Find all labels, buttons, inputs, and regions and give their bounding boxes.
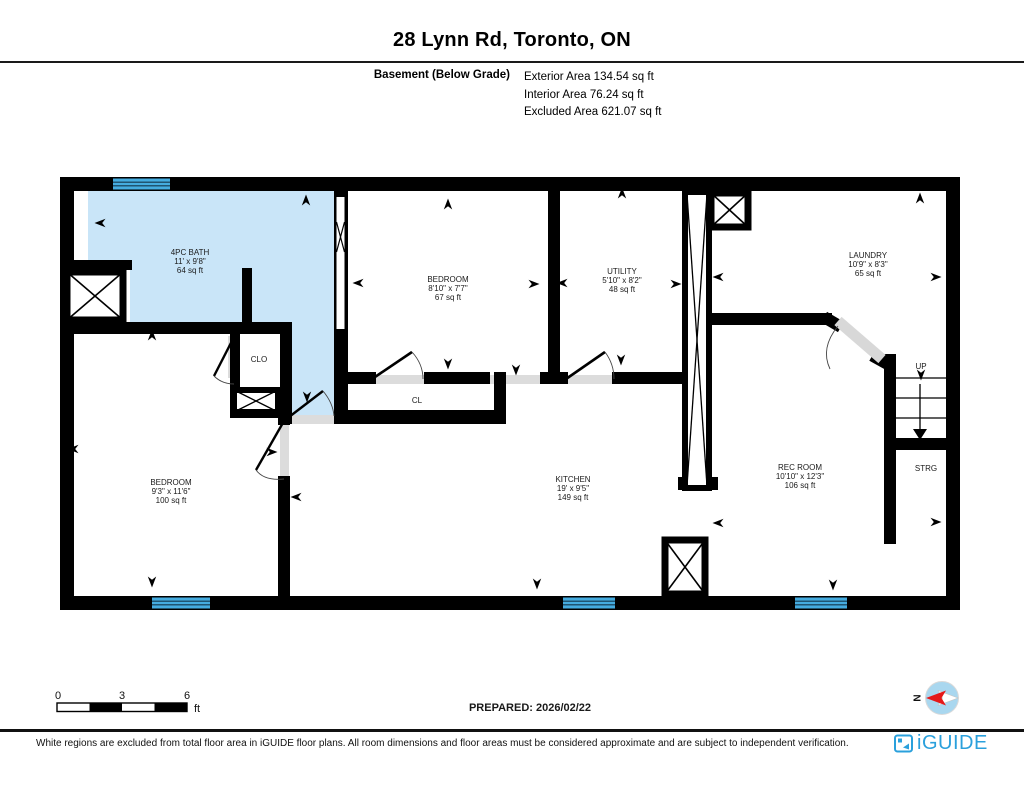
svg-text:LAUNDRY: LAUNDRY <box>849 251 888 260</box>
iguide-logo-icon <box>893 733 914 754</box>
svg-text:9'3" x 11'6": 9'3" x 11'6" <box>152 487 191 496</box>
door-bedroom-top <box>372 352 423 379</box>
svg-text:5'10" x 8'2": 5'10" x 8'2" <box>602 276 642 285</box>
label-bedroom-top: BEDROOM 8'10" x 7'7" 67 sq ft <box>427 275 469 302</box>
iguide-logo-text: iGUIDE <box>917 732 988 755</box>
dimension-arrow <box>291 493 302 501</box>
svg-text:8'10" x 7'7": 8'10" x 7'7" <box>428 284 468 293</box>
svg-text:48 sq ft: 48 sq ft <box>609 285 636 294</box>
label-rec-room: REC ROOM 10'10" x 12'3" 106 sq ft <box>776 463 824 490</box>
svg-text:67 sq ft: 67 sq ft <box>435 293 462 302</box>
dimension-arrow <box>931 273 942 281</box>
shaft-x-kitchen <box>665 540 705 594</box>
svg-text:64 sq ft: 64 sq ft <box>177 266 204 275</box>
shaft-x-clo <box>234 390 278 412</box>
window-kitchen <box>563 598 615 609</box>
floor-plan: 4PC BATH 11' x 9'8" 64 sq ft BEDROOM 8'1… <box>0 0 1024 792</box>
label-bedroom-left: BEDROOM 9'3" x 11'6" 100 sq ft <box>150 478 192 505</box>
svg-text:BEDROOM: BEDROOM <box>150 478 192 487</box>
prepared-date: PREPARED: 2026/02/22 <box>469 702 591 714</box>
dimension-arrow <box>533 579 541 590</box>
window-top <box>113 179 170 190</box>
dimension-arrow <box>713 273 724 281</box>
svg-text:10'10" x 12'3": 10'10" x 12'3" <box>776 472 824 481</box>
label-up: UP <box>915 362 926 371</box>
dimension-arrow <box>444 199 452 210</box>
svg-text:KITCHEN: KITCHEN <box>555 475 590 484</box>
door-utility <box>566 352 614 379</box>
svg-text:100 sq ft: 100 sq ft <box>156 496 187 505</box>
label-strg: STRG <box>915 464 937 473</box>
dimension-arrow <box>829 580 837 591</box>
svg-text:149 sq ft: 149 sq ft <box>558 493 589 502</box>
svg-text:10'9" x 8'3": 10'9" x 8'3" <box>848 260 888 269</box>
compass-north-label: N <box>913 694 924 701</box>
window-recroom <box>795 598 847 609</box>
svg-text:11' x 9'8": 11' x 9'8" <box>174 257 206 266</box>
svg-text:BEDROOM: BEDROOM <box>427 275 469 284</box>
svg-text:4PC BATH: 4PC BATH <box>171 248 210 257</box>
window-bedroom <box>152 598 210 609</box>
label-clo: CLO <box>251 355 267 364</box>
dimension-arrow <box>512 365 520 376</box>
dimension-arrow <box>916 193 924 204</box>
label-cl: CL <box>412 396 423 405</box>
shaft-x-bath <box>67 272 123 320</box>
iguide-logo: iGUIDE <box>893 732 988 755</box>
scale-unit: ft <box>194 703 200 715</box>
dimension-arrow <box>148 577 156 588</box>
dimension-arrow <box>267 448 278 456</box>
chimney-shaft <box>685 192 709 488</box>
disclaimer-text: White regions are excluded from total fl… <box>36 738 849 749</box>
dimension-arrow <box>617 355 625 366</box>
svg-text:106 sq ft: 106 sq ft <box>785 481 816 490</box>
stairs <box>896 378 946 440</box>
shaft-x-laundry <box>711 193 748 227</box>
compass: N <box>913 682 959 715</box>
dimension-arrow <box>713 519 724 527</box>
dimension-arrow <box>444 359 452 370</box>
label-laundry: LAUNDRY 10'9" x 8'3" 65 sq ft <box>848 251 888 278</box>
scale-tick-3: 3 <box>119 690 125 702</box>
svg-text:REC ROOM: REC ROOM <box>778 463 822 472</box>
scale-tick-0: 0 <box>55 690 61 702</box>
label-utility: UTILITY 5'10" x 8'2" 48 sq ft <box>602 267 642 294</box>
svg-text:UTILITY: UTILITY <box>607 267 637 276</box>
dimension-arrow <box>529 280 540 288</box>
dimension-arrow <box>671 280 682 288</box>
label-kitchen: KITCHEN 19' x 9'5" 149 sq ft <box>555 475 590 502</box>
dimension-arrow <box>931 518 942 526</box>
svg-text:19' x 9'5": 19' x 9'5" <box>557 484 589 493</box>
dimension-arrow <box>917 370 925 381</box>
scale-bar: 0 3 6 ft <box>55 690 200 715</box>
dimension-arrow <box>353 279 364 287</box>
scale-tick-6: 6 <box>184 690 190 702</box>
footer-divider <box>0 729 1024 732</box>
pocket-door <box>337 197 345 329</box>
svg-text:65 sq ft: 65 sq ft <box>855 269 882 278</box>
